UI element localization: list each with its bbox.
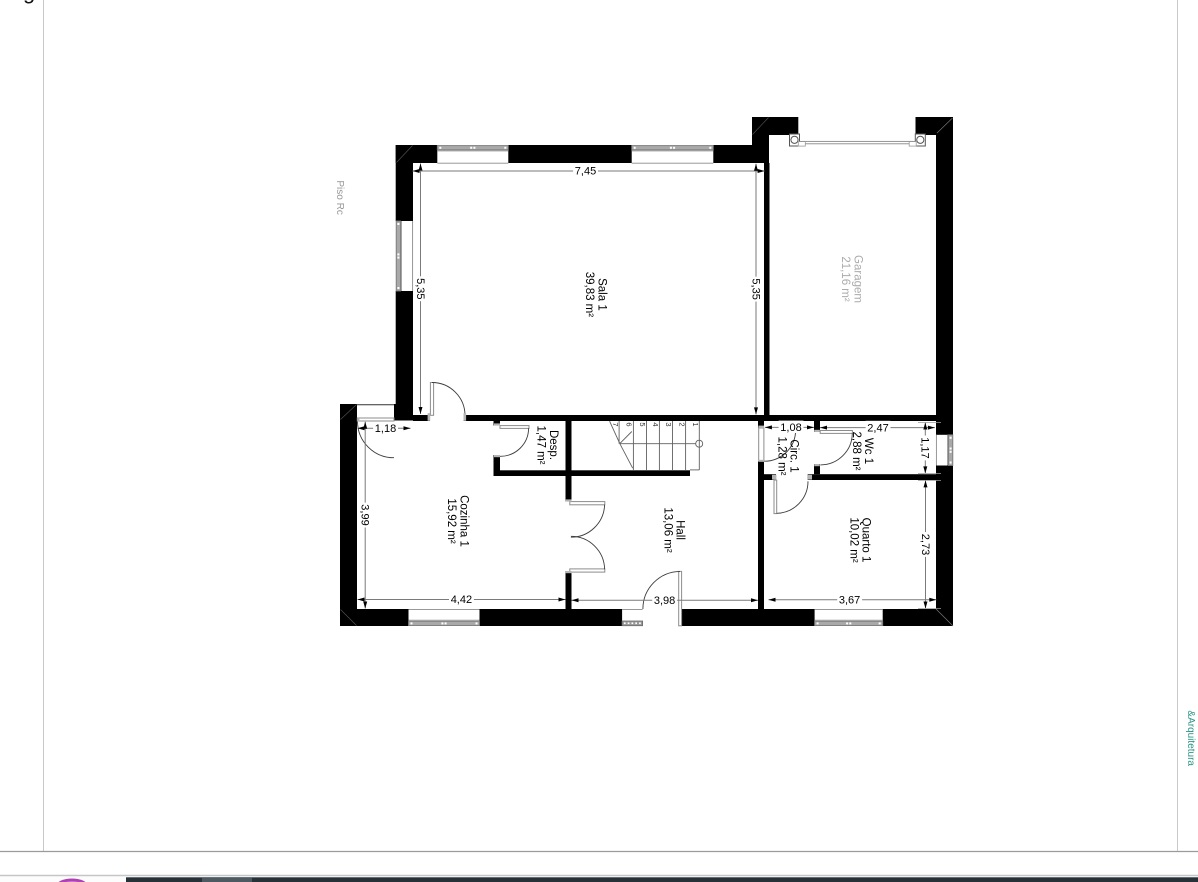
svg-text:7,45: 7,45 — [575, 166, 596, 178]
svg-text:1,28 m²: 1,28 m² — [775, 437, 787, 476]
svg-text:g: g — [23, 0, 35, 4]
svg-text:1,18: 1,18 — [375, 423, 396, 435]
svg-text:Desp.: Desp. — [547, 430, 559, 460]
svg-text:10,02 m²: 10,02 m² — [847, 517, 859, 563]
svg-text:2: 2 — [677, 422, 686, 426]
svg-text:6: 6 — [625, 422, 634, 426]
svg-text:5,35: 5,35 — [414, 278, 426, 299]
svg-text:7: 7 — [611, 422, 620, 426]
svg-text:1,08: 1,08 — [780, 422, 801, 434]
svg-text:3,67: 3,67 — [839, 595, 860, 607]
svg-text:Quarto 1: Quarto 1 — [860, 518, 872, 563]
svg-text:Hall: Hall — [674, 520, 686, 540]
svg-text:Cozinha 1: Cozinha 1 — [457, 495, 469, 547]
svg-text:2,73: 2,73 — [919, 534, 931, 555]
svg-text:1,17: 1,17 — [919, 437, 931, 458]
svg-text:Circ. 1: Circ. 1 — [788, 439, 800, 472]
svg-text:4,42: 4,42 — [451, 594, 472, 606]
svg-text:&Arquitetura: &Arquitetura — [1185, 710, 1196, 766]
svg-text:5: 5 — [638, 422, 647, 426]
svg-text:3: 3 — [664, 422, 673, 426]
svg-text:2,47: 2,47 — [867, 422, 888, 434]
svg-text:21,16 m²: 21,16 m² — [839, 256, 851, 302]
svg-text:Garagem: Garagem — [851, 255, 863, 303]
svg-text:3,99: 3,99 — [359, 504, 371, 525]
svg-text:39,83 m²: 39,83 m² — [583, 272, 595, 318]
svg-text:3,98: 3,98 — [654, 595, 675, 607]
svg-text:15,92 m²: 15,92 m² — [445, 498, 457, 544]
svg-text:1,47 m²: 1,47 m² — [535, 426, 547, 465]
svg-text:4: 4 — [651, 422, 660, 426]
svg-text:5,35: 5,35 — [749, 278, 761, 299]
svg-text:1: 1 — [691, 422, 700, 426]
svg-text:13,06 m²: 13,06 m² — [661, 507, 673, 553]
svg-text:2,88 m²: 2,88 m² — [850, 432, 862, 471]
svg-text:Sala 1: Sala 1 — [595, 278, 607, 311]
svg-text:Piso Rc: Piso Rc — [334, 180, 345, 214]
svg-text:Wc 1: Wc 1 — [862, 438, 874, 464]
